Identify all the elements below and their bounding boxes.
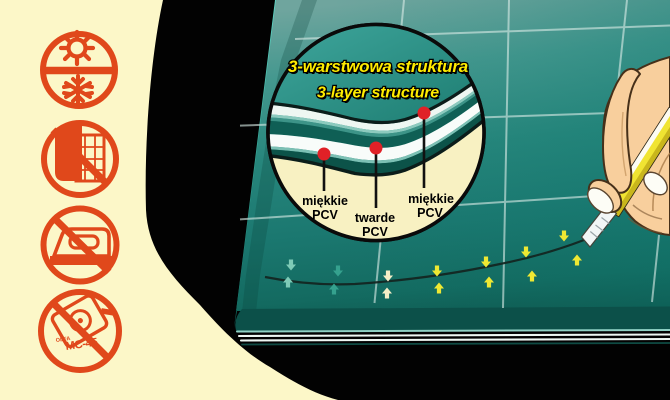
svg-text:PCV: PCV: [417, 206, 443, 220]
svg-text:3-layer structure: 3-layer structure: [317, 85, 439, 102]
svg-text:PCV: PCV: [312, 208, 338, 222]
svg-text:PCV: PCV: [362, 225, 388, 239]
svg-text:3-warstwowa struktura: 3-warstwowa struktura: [288, 57, 468, 76]
svg-text:miękkie: miękkie: [408, 192, 454, 206]
svg-text:twarde: twarde: [355, 211, 395, 225]
svg-text:miękkie: miękkie: [302, 194, 348, 208]
